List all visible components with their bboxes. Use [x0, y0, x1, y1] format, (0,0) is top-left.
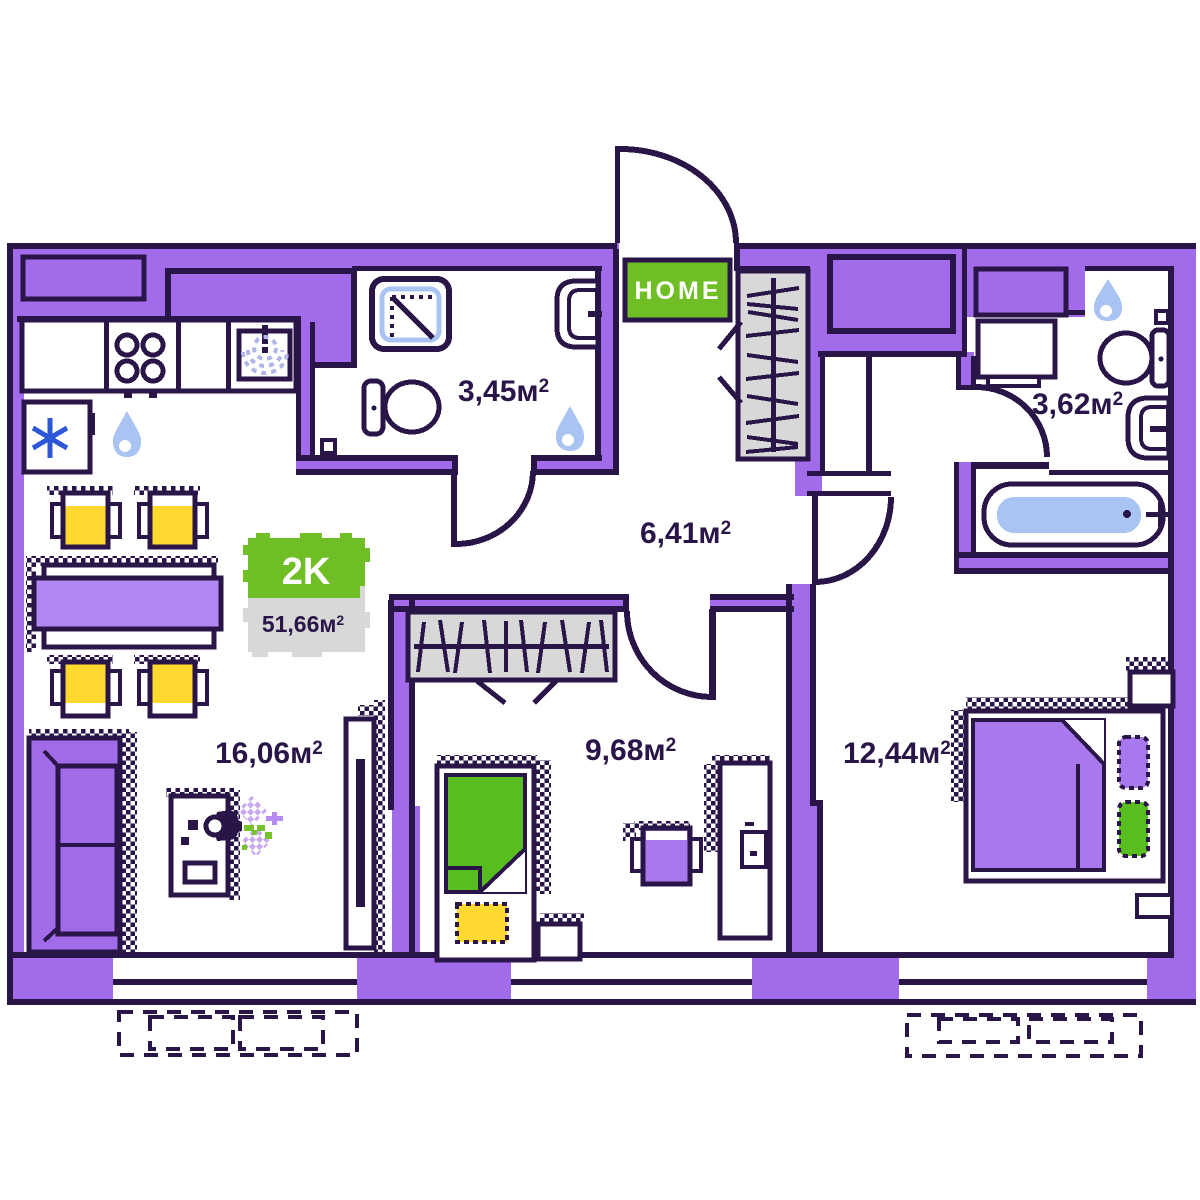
svg-text:9,68м2: 9,68м2 [585, 734, 676, 767]
svg-text:16,06м2: 16,06м2 [215, 737, 323, 770]
svg-text:2K: 2K [282, 551, 331, 593]
svg-text:HOME: HOME [635, 277, 722, 305]
svg-text:3,62м2: 3,62м2 [1032, 388, 1123, 421]
svg-text:3,45м2: 3,45м2 [458, 375, 549, 408]
svg-text:51,66м2: 51,66м2 [262, 611, 345, 637]
svg-text:12,44м2: 12,44м2 [843, 737, 951, 770]
svg-text:6,41м2: 6,41м2 [640, 517, 731, 550]
